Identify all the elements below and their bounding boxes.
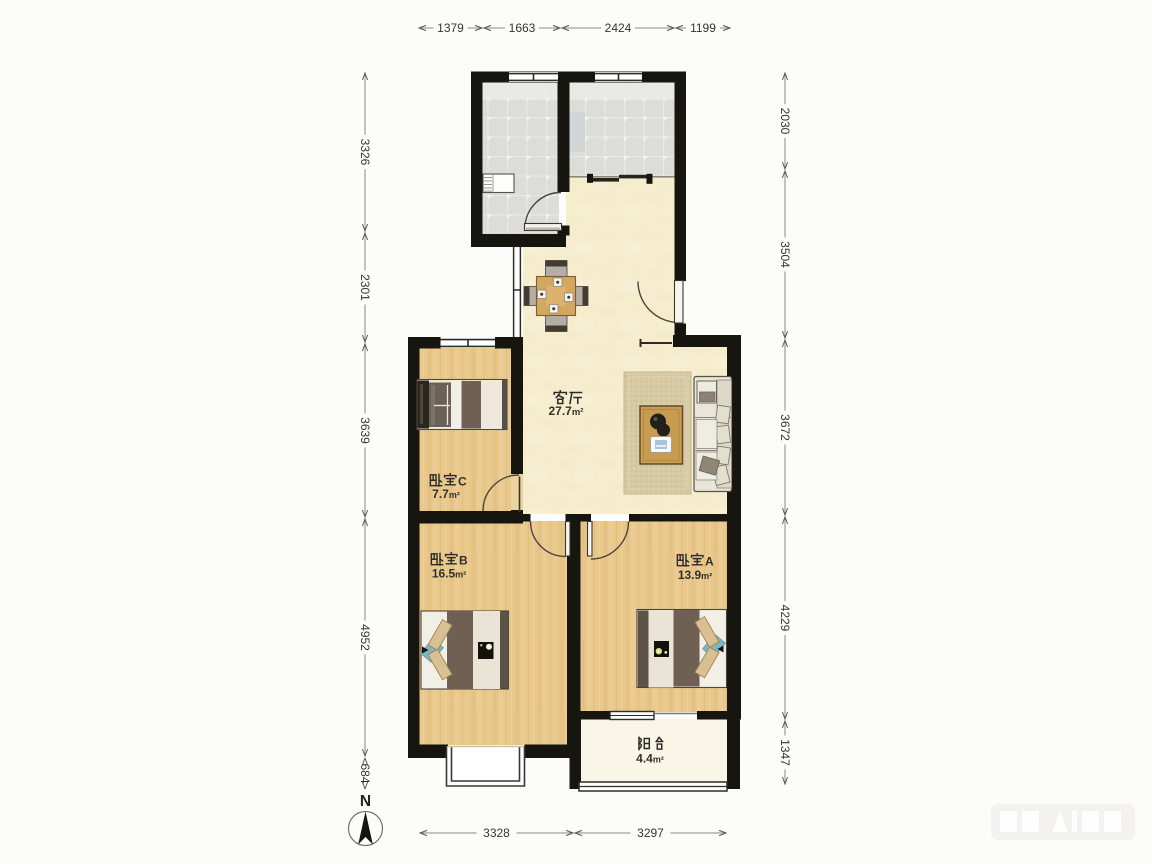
svg-text:1347: 1347 [778,739,792,766]
svg-text:C: C [458,475,467,489]
svg-text:684: 684 [358,763,372,783]
svg-text:1199: 1199 [690,21,716,35]
svg-text:3328: 3328 [483,826,510,840]
svg-text:B: B [459,554,468,568]
svg-text:4.4m²: 4.4m² [636,752,664,766]
svg-text:2301: 2301 [358,274,372,301]
svg-text:3672: 3672 [778,414,792,441]
svg-text:2424: 2424 [605,21,632,35]
svg-text:4952: 4952 [358,624,372,651]
svg-text:N: N [360,793,371,810]
svg-text:4229: 4229 [778,605,792,632]
svg-text:16.5m²: 16.5m² [432,567,466,581]
svg-text:3504: 3504 [778,241,792,268]
svg-text:7.7m²: 7.7m² [432,487,460,501]
svg-text:1663: 1663 [509,21,536,35]
svg-text:13.9m²: 13.9m² [678,568,712,582]
svg-text:3639: 3639 [358,417,372,444]
svg-text:2030: 2030 [778,108,792,135]
svg-text:3326: 3326 [358,139,372,166]
svg-text:A: A [705,555,714,569]
svg-text:27.7m²: 27.7m² [549,404,584,418]
svg-text:3297: 3297 [637,826,664,840]
svg-text:1379: 1379 [437,21,464,35]
